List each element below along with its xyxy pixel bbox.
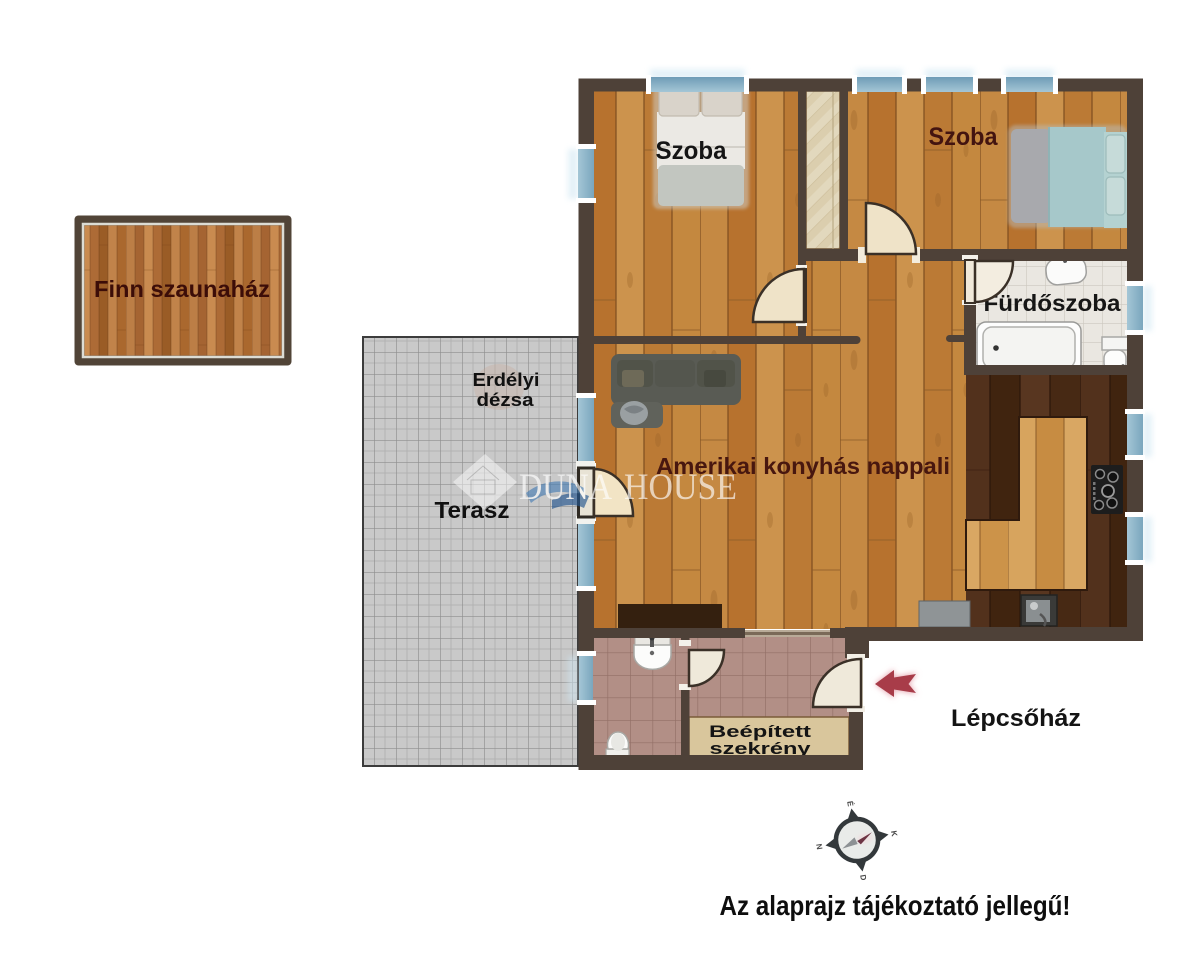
svg-text:Finn szaunaház: Finn szaunaház bbox=[94, 276, 270, 302]
svg-text:Lépcsőház: Lépcsőház bbox=[951, 705, 1081, 732]
svg-text:HOUSE: HOUSE bbox=[624, 467, 737, 508]
svg-text:Fürdőszoba: Fürdőszoba bbox=[984, 290, 1121, 316]
svg-text:Erdélyi: Erdélyi bbox=[473, 370, 540, 390]
svg-text:Szoba: Szoba bbox=[656, 137, 728, 165]
svg-text:Terasz: Terasz bbox=[435, 497, 510, 523]
svg-text:Beépített: Beépített bbox=[709, 723, 812, 741]
svg-text:DUNA: DUNA bbox=[519, 467, 612, 508]
svg-text:Az alaprajz tájékoztató jelleg: Az alaprajz tájékoztató jellegű! bbox=[720, 890, 1071, 921]
svg-text:Szoba: Szoba bbox=[929, 123, 999, 151]
svg-text:dézsa: dézsa bbox=[477, 390, 535, 410]
